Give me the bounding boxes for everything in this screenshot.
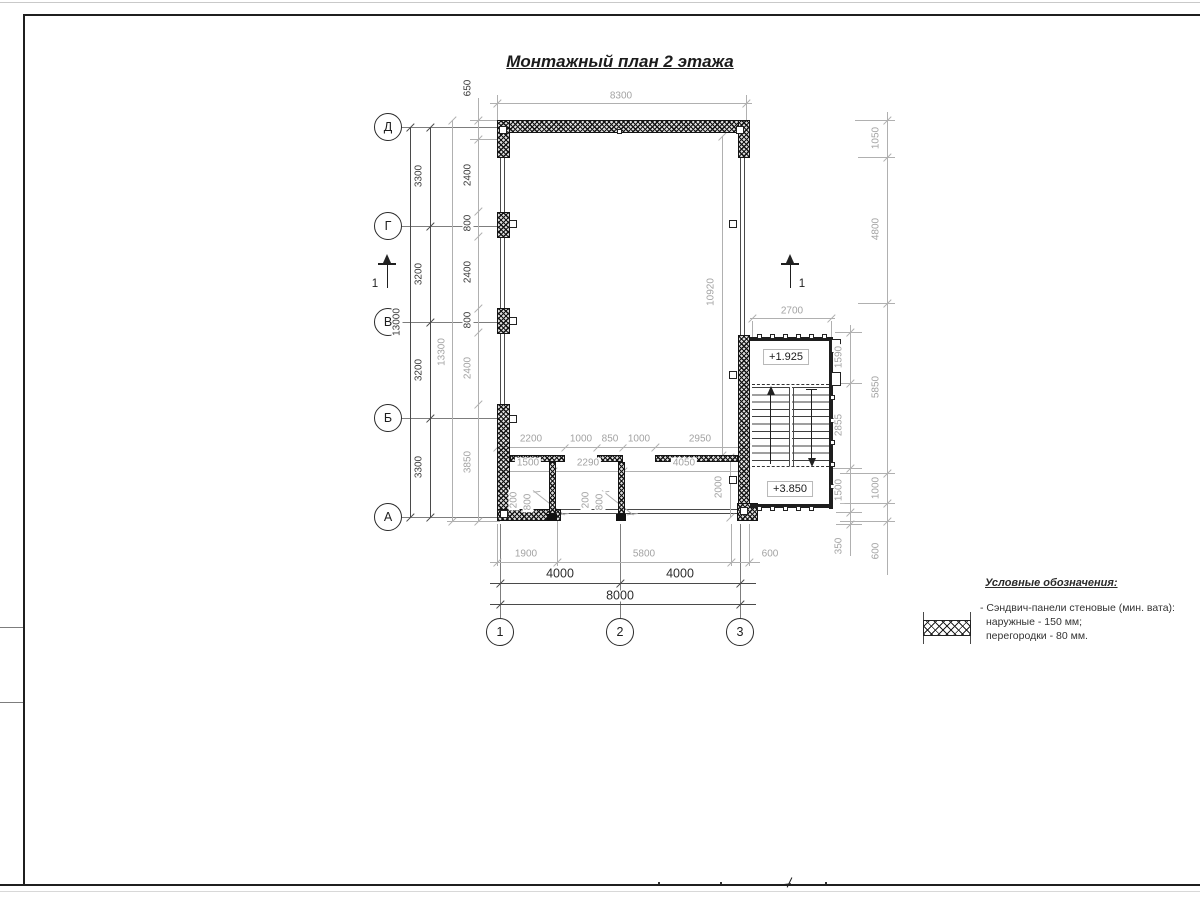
panel-joint xyxy=(770,334,775,339)
dim-label: 2000 xyxy=(714,474,725,500)
extension-line xyxy=(470,120,497,121)
dim-line xyxy=(722,136,723,455)
extension-line xyxy=(836,512,862,513)
extension-line xyxy=(858,157,895,158)
panel-joint xyxy=(809,334,814,339)
dim-label: 600 xyxy=(871,541,882,562)
axis-line-v xyxy=(402,322,497,323)
partition-stub xyxy=(618,462,625,514)
section-arrow-icon xyxy=(383,254,391,263)
panel-connector xyxy=(509,317,517,325)
stair-pilaster xyxy=(831,372,841,386)
dim-label: 4000 xyxy=(664,569,696,580)
dim-label: 3850 xyxy=(463,449,474,475)
legend-item-line2: наружные - 150 мм; xyxy=(986,616,1082,629)
legend-item-line3: перегородки - 80 мм. xyxy=(986,630,1088,643)
dim-tick xyxy=(718,132,727,141)
dim-label: 8000 xyxy=(604,591,636,602)
dim-tick xyxy=(474,304,483,313)
axis-label: 1 xyxy=(497,625,504,639)
dim-label: 2400 xyxy=(463,162,474,188)
panel-joint xyxy=(822,334,827,339)
dim-line xyxy=(887,112,888,575)
partition-foot xyxy=(547,514,557,521)
dim-line xyxy=(730,457,731,517)
dim-line xyxy=(490,103,752,104)
panel-connector xyxy=(729,371,737,379)
dim-label: 1900 xyxy=(513,549,539,560)
stair-stringer xyxy=(793,387,794,466)
dim-tick xyxy=(448,116,457,125)
dim-line xyxy=(490,583,756,584)
axis-label: 2 xyxy=(617,625,624,639)
section-arrow-icon xyxy=(786,254,794,263)
stair-down-arrow-line xyxy=(811,390,812,458)
section-mark-line xyxy=(790,264,791,288)
dim-tick xyxy=(474,232,483,241)
legend-symbol-sandwich-panel-hatch xyxy=(923,620,971,636)
panel-connector xyxy=(740,507,748,515)
panel-connector xyxy=(617,129,622,134)
dim-tick xyxy=(726,513,735,522)
extension-line xyxy=(752,321,753,337)
dim-line xyxy=(452,120,453,521)
panel-connector xyxy=(499,126,507,134)
axis-bubble-col-3: 3 xyxy=(726,618,754,646)
page-top-edge xyxy=(0,2,1200,3)
legend-item-line1: - Сэндвич-панели стеновые (мин. вата): xyxy=(980,602,1175,615)
panel-connector xyxy=(729,476,737,484)
extension-line xyxy=(833,468,862,469)
dim-label: 3200 xyxy=(414,261,425,287)
panel-joint xyxy=(757,334,762,339)
panel-joint xyxy=(830,440,835,445)
axis-label: Д xyxy=(384,120,392,134)
legend-heading: Условные обозначения: xyxy=(985,577,1118,589)
axis-bubble-col-1: 1 xyxy=(486,618,514,646)
dim-label: 800 xyxy=(463,310,474,331)
dim-label: 13300 xyxy=(437,336,448,368)
section-mark-line xyxy=(387,264,388,288)
panel-connector xyxy=(509,415,517,423)
panel-joint xyxy=(770,506,775,511)
dim-label: 650 xyxy=(463,78,474,99)
extension-line xyxy=(470,139,500,140)
extension-line xyxy=(746,95,747,120)
extension-line xyxy=(447,521,500,522)
dim-label: 3300 xyxy=(414,454,425,480)
dim-tick xyxy=(474,400,483,409)
frame-mark xyxy=(658,882,660,884)
dim-label: 1500 xyxy=(515,458,541,469)
stair-landing-edge xyxy=(752,466,829,467)
stair-down-arrowhead xyxy=(808,458,816,467)
drawing-title: Монтажный план 2 этажа xyxy=(452,52,788,72)
dim-label: 2855 xyxy=(834,412,845,438)
section-mark-label: 1 xyxy=(372,278,378,290)
stair-wall-top xyxy=(750,337,833,341)
dim-label: 200 xyxy=(509,490,520,511)
dim-line xyxy=(478,98,479,521)
extension-line xyxy=(855,120,895,121)
panel-connector xyxy=(509,220,517,228)
window-band xyxy=(740,158,745,335)
panel-joint xyxy=(830,462,835,467)
stair-up-arrow-line xyxy=(770,392,771,464)
window-band xyxy=(500,158,505,212)
dim-label: 2950 xyxy=(687,434,713,445)
dim-label: 1590 xyxy=(834,344,845,370)
axis-label: Б xyxy=(384,411,392,425)
dim-label: 800 xyxy=(595,492,606,513)
dim-label: 2200 xyxy=(518,434,544,445)
panel-connector xyxy=(500,510,508,518)
stair-stringer xyxy=(789,387,790,466)
axis-label: Г xyxy=(385,219,392,233)
panel-joint xyxy=(783,334,788,339)
extension-line xyxy=(858,303,895,304)
frame-left xyxy=(23,14,25,885)
frame-bottom xyxy=(0,884,1200,886)
dim-tick xyxy=(474,328,483,337)
panel-joint xyxy=(783,506,788,511)
panel-joint xyxy=(830,395,835,400)
dim-label: 600 xyxy=(760,549,781,560)
wall-right-lower xyxy=(738,335,750,521)
elevation-mark-landing: +1.925 xyxy=(763,349,809,365)
extension-line xyxy=(831,321,832,337)
axis-bubble-row-g: Г xyxy=(374,212,402,240)
elevation-mark-upper: +3.850 xyxy=(767,481,813,497)
dim-line xyxy=(850,325,851,556)
partition-foot xyxy=(616,514,626,521)
extension-line xyxy=(557,516,558,566)
frame-left-box-bottom xyxy=(0,702,23,703)
frame-mark xyxy=(720,882,722,884)
dim-label: 10920 xyxy=(706,276,717,308)
frame-left-box-top xyxy=(0,627,23,628)
extension-line xyxy=(497,95,498,120)
dim-label: 850 xyxy=(600,434,621,445)
dim-label: 4050 xyxy=(671,458,697,469)
dim-label: 5850 xyxy=(871,374,882,400)
panel-joint xyxy=(796,506,801,511)
frame-signature-mark xyxy=(787,877,793,887)
axis-line-g xyxy=(402,226,497,227)
axis-label: 3 xyxy=(737,625,744,639)
dim-label: 1000 xyxy=(626,434,652,445)
panel-connector xyxy=(736,126,744,134)
dim-line xyxy=(750,318,835,319)
dim-label: 8300 xyxy=(608,91,634,102)
dim-label: 2400 xyxy=(463,259,474,285)
dim-line xyxy=(430,127,431,517)
dim-label: 800 xyxy=(463,213,474,234)
extension-line xyxy=(835,332,862,333)
window-band xyxy=(500,238,505,308)
dim-label: 3300 xyxy=(414,163,425,189)
dim-label: 4800 xyxy=(871,216,882,242)
dim-tick xyxy=(474,207,483,216)
dim-label: 4000 xyxy=(544,569,576,580)
stair-arrow-start-bar xyxy=(806,389,817,390)
partition-stub xyxy=(549,462,556,514)
dim-line xyxy=(497,447,746,448)
axis-bubble-row-a: А xyxy=(374,503,402,531)
dim-label: 800 xyxy=(523,492,534,513)
dim-line xyxy=(410,127,411,517)
axis-label: А xyxy=(384,510,392,524)
dim-label: 5800 xyxy=(631,549,657,560)
axis-bubble-col-2: 2 xyxy=(606,618,634,646)
axis-bubble-row-d: Д xyxy=(374,113,402,141)
dim-label: 3200 xyxy=(414,357,425,383)
stair-landing-edge xyxy=(752,384,829,385)
dim-label: 2400 xyxy=(463,355,474,381)
dim-label: 350 xyxy=(834,536,845,557)
panel-joint xyxy=(796,334,801,339)
dim-label: 2290 xyxy=(575,458,601,469)
dim-label: 1000 xyxy=(568,434,594,445)
dim-label: 1000 xyxy=(871,475,882,501)
extension-line xyxy=(749,524,750,566)
axis-line-b xyxy=(402,418,497,419)
stair-wall-bottom xyxy=(750,504,833,508)
axis-line-a xyxy=(402,517,497,518)
dim-label: 2700 xyxy=(779,306,805,317)
window-band xyxy=(500,334,505,404)
frame-top xyxy=(23,14,1200,16)
panel-connector xyxy=(729,220,737,228)
axis-bubble-row-b: Б xyxy=(374,404,402,432)
section-mark-label: 1 xyxy=(799,278,805,290)
frame-mark xyxy=(825,882,827,884)
dim-line xyxy=(490,604,756,605)
dim-line xyxy=(490,562,760,563)
stair-up-arrowhead xyxy=(767,386,775,395)
dim-label: 200 xyxy=(581,490,592,511)
dim-label: 1500 xyxy=(834,477,845,503)
panel-joint xyxy=(757,506,762,511)
extension-line xyxy=(731,524,732,566)
page-bottom-edge xyxy=(0,891,1200,892)
drawing-sheet: Монтажный план 2 этажа xyxy=(0,0,1200,900)
axis-line-d xyxy=(402,127,497,128)
dim-label: 1050 xyxy=(871,125,882,151)
panel-joint xyxy=(809,506,814,511)
extension-line xyxy=(497,524,498,566)
dim-label: 13000 xyxy=(392,306,403,338)
extension-line xyxy=(836,524,862,525)
wall-top xyxy=(497,120,750,133)
